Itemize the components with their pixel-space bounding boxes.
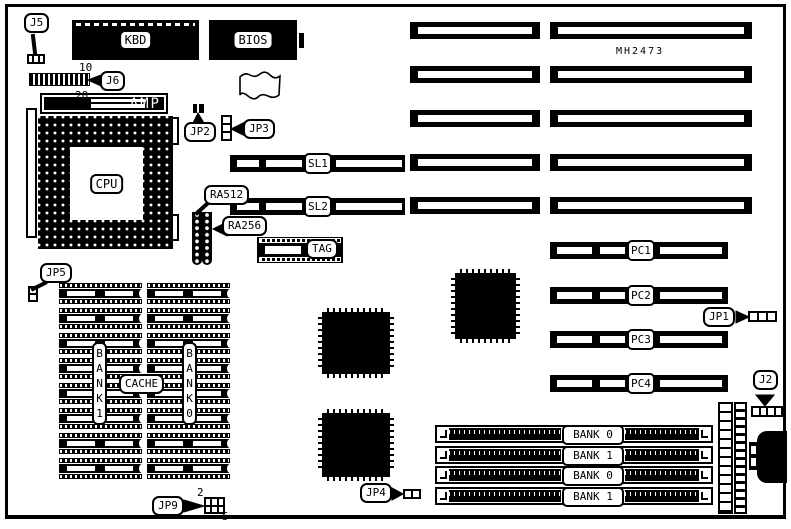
pc-slot-3-label: PC3: [627, 329, 655, 350]
simm-latch-icon: [701, 451, 708, 459]
keyboard-din-connector: [757, 431, 787, 483]
slot-segment: [557, 380, 592, 387]
slot-segment: [237, 160, 259, 167]
simm-latch-icon: [701, 471, 708, 479]
notch-icon: [227, 439, 233, 448]
j2-label: J2: [753, 370, 778, 390]
pc-slot-3: PC3: [550, 331, 728, 348]
slot-segment: [660, 247, 722, 254]
isa-slot-3-right: [550, 110, 752, 127]
slot-contact-area: [558, 202, 744, 209]
cpu-socket-center: CPU: [70, 147, 143, 220]
kbd-pin1-dashes: [76, 23, 195, 26]
simm-latch-icon: [440, 471, 447, 479]
jp9-pin5-number: 5: [222, 511, 229, 522]
notch-icon: [139, 289, 145, 298]
cache-sram-socket: [147, 458, 230, 479]
cpu-socket-right-bracket-bottom: [171, 214, 179, 241]
board-model-text: MH2473: [616, 46, 664, 57]
slot-segment: [557, 336, 592, 343]
isa-slot-3-left: [410, 110, 540, 127]
slot-contact-area: [418, 202, 532, 209]
j5-label: J5: [24, 13, 49, 33]
jp2-jumper: [193, 104, 204, 113]
sl1-slot-label: SL1: [304, 153, 332, 174]
slot-contact-area: [418, 159, 532, 166]
j6-label: J6: [100, 71, 125, 91]
jp3-jumper: [221, 115, 232, 141]
j6-pin10-number: 10: [79, 62, 92, 73]
simm-contact-row: [625, 428, 699, 440]
chip-window: [265, 246, 301, 254]
notch-icon: [227, 314, 233, 323]
notch-icon: [227, 364, 233, 373]
slot-segment: [600, 336, 625, 343]
slot-contact-area: [418, 27, 532, 34]
notch-icon: [139, 364, 145, 373]
slot-contact-area: [558, 159, 744, 166]
cache-sram-socket: [147, 308, 230, 329]
slot-contact-area: [418, 115, 532, 122]
slot-segment: [660, 380, 722, 387]
jp5-jumper: [28, 286, 38, 302]
simm-bank-label-4: BANK 1: [562, 487, 624, 507]
cache-sram-socket: [59, 283, 142, 304]
pin-row: [147, 324, 230, 329]
ra256-resistor-pack: [202, 212, 212, 265]
pc-slot-1: PC1: [550, 242, 728, 259]
bios-chip-label: BIOS: [233, 30, 274, 50]
pin-row: [147, 299, 230, 304]
pin-row: [147, 433, 230, 438]
kbd-chip-label: KBD: [119, 30, 153, 50]
isa-slot-4-right: [550, 154, 752, 171]
cache-sram-socket: [147, 283, 230, 304]
vlb-slot-sl1: SL1: [230, 155, 405, 172]
chip-body: [59, 439, 142, 448]
cpu-socket-left-bracket: [26, 108, 37, 238]
kbd-controller-chip: KBD: [72, 20, 199, 60]
simm-latch-icon: [440, 451, 447, 459]
isa-slot-2-left: [410, 66, 540, 83]
jp4-jumper: [403, 489, 421, 499]
slot-segment: [600, 292, 625, 299]
simm-latch-icon: [440, 492, 447, 500]
pc-slot-2-label: PC2: [627, 285, 655, 306]
cache-sram-socket: [147, 433, 230, 454]
isa-slot-5-right: [550, 197, 752, 214]
slot-segment: [660, 292, 722, 299]
simm-bank-label-3: BANK 0: [562, 466, 624, 486]
ra512-resistor-pack: [192, 212, 202, 265]
jp1-label: JP1: [703, 307, 735, 327]
chip-body: [147, 464, 230, 473]
jp4-label: JP4: [360, 483, 392, 503]
j6-pin20-number: 20: [75, 90, 88, 101]
pc-slot-4: PC4: [550, 375, 728, 392]
slot-contact-area: [558, 71, 744, 78]
pin-row: [59, 433, 142, 438]
simm-socket-4: BANK 1: [435, 487, 713, 505]
cache-bank0-label: BANK0: [182, 342, 197, 425]
jp5-label: JP5: [40, 263, 72, 283]
simm-socket-2: BANK 1: [435, 446, 713, 464]
simm-bank-label-2: BANK 1: [562, 446, 624, 466]
notch-icon: [139, 464, 145, 473]
slot-segment: [336, 160, 402, 167]
pin-row: [147, 458, 230, 463]
simm-contact-row: [449, 449, 561, 461]
slot-segment: [600, 247, 625, 254]
simm-contact-row: [449, 469, 561, 481]
simm-latch-icon: [701, 430, 708, 438]
simm-contact-row: [625, 490, 699, 502]
simm-latch-icon: [701, 492, 708, 500]
simm-latch-icon: [440, 430, 447, 438]
power-connector-left: [718, 402, 733, 514]
chip-body: [59, 289, 142, 298]
pin-row: [59, 299, 142, 304]
notch-icon: [139, 414, 145, 423]
motherboard-diagram: MH2473 J5 KBD BIOS 10 20 J6 AMP JP2 JP3 …: [0, 0, 791, 529]
isa-slot-4-left: [410, 154, 540, 171]
simm-contact-row: [625, 449, 699, 461]
slot-segment: [660, 336, 722, 343]
cache-sram-socket: [59, 458, 142, 479]
ra512-label: RA512: [204, 185, 249, 205]
pc-slot-1-label: PC1: [627, 240, 655, 261]
simm-socket-1: BANK 0: [435, 425, 713, 443]
chip-body: [59, 464, 142, 473]
slot-contact-area: [558, 27, 744, 34]
pc-slot-2: PC2: [550, 287, 728, 304]
notch-icon: [227, 289, 233, 298]
j6-pin-header: [29, 73, 90, 86]
slot-segment: [266, 203, 302, 210]
chip-body: [59, 314, 142, 323]
cpu-socket: CPU: [38, 116, 173, 249]
amp-label: AMP: [130, 96, 161, 112]
notch-icon: [227, 389, 233, 398]
amp-regulator: AMP: [40, 93, 168, 114]
isa-slot-2-right: [550, 66, 752, 83]
slot-contact-area: [558, 115, 744, 122]
j2-connector: [751, 406, 783, 417]
bios-chip-tab: [299, 33, 304, 48]
notch-icon: [227, 414, 233, 423]
j5-connector: [27, 54, 45, 64]
chipset-qfp-3: [322, 413, 390, 477]
pin-row: [147, 449, 230, 454]
pin-row: [147, 474, 230, 479]
chip-body: [147, 314, 230, 323]
jp2-label: JP2: [184, 122, 216, 142]
pin-row: [59, 283, 142, 288]
pin-row: [147, 308, 230, 313]
notch-icon: [139, 339, 145, 348]
pin-row: [59, 474, 142, 479]
ra256-label: RA256: [222, 216, 267, 236]
pc-slot-4-label: PC4: [627, 373, 655, 394]
pin-row: [59, 449, 142, 454]
sl2-slot-label: SL2: [304, 196, 332, 217]
chipset-qfp-1: [455, 273, 516, 339]
cache-label: CACHE: [119, 374, 164, 394]
slot-segment: [336, 203, 402, 210]
simm-bank-label-1: BANK 0: [562, 425, 624, 445]
cpu-label: CPU: [90, 174, 124, 194]
chip-body: [147, 439, 230, 448]
cache-sram-socket: [59, 308, 142, 329]
jp9-pin2-number: 2: [197, 487, 204, 498]
pin-row: [147, 283, 230, 288]
oscillator-outline: [236, 69, 284, 103]
notch-icon: [139, 314, 145, 323]
chip-body: [147, 289, 230, 298]
isa-slot-1-right: [550, 22, 752, 39]
power-connector-right: [734, 402, 747, 514]
simm-socket-3: BANK 0: [435, 466, 713, 484]
notch-icon: [227, 339, 233, 348]
isa-slot-5-left: [410, 197, 540, 214]
slot-segment: [557, 247, 592, 254]
chipset-qfp-2: [322, 312, 390, 374]
jp9-label: JP9: [152, 496, 184, 516]
simm-contact-row: [449, 428, 561, 440]
pin-row: [59, 308, 142, 313]
simm-contact-row: [625, 469, 699, 481]
simm-contact-row: [449, 490, 561, 502]
vlb-slot-sl2: SL2: [230, 198, 405, 215]
slot-contact-area: [418, 71, 532, 78]
notch-icon: [227, 464, 233, 473]
pin-row: [59, 324, 142, 329]
pin-row: [147, 333, 230, 338]
slot-segment: [266, 160, 302, 167]
tag-chip-label: TAG: [306, 239, 338, 259]
notch-icon: [139, 439, 145, 448]
bios-rom-chip: BIOS: [209, 20, 297, 60]
jp1-jumper: [748, 311, 777, 322]
pin-row: [59, 333, 142, 338]
cache-sram-socket: [59, 433, 142, 454]
slot-segment: [557, 292, 592, 299]
cpu-socket-right-bracket-top: [171, 117, 179, 145]
isa-slot-1-left: [410, 22, 540, 39]
jp3-label: JP3: [243, 119, 275, 139]
slot-segment: [600, 380, 625, 387]
pin-row: [59, 458, 142, 463]
cache-bank1-label: BANK1: [92, 342, 107, 425]
